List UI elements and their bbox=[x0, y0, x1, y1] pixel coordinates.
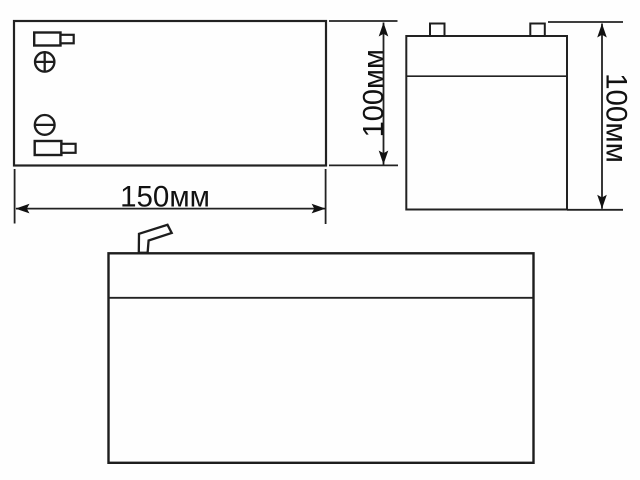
svg-text:100мм: 100мм bbox=[600, 73, 633, 163]
svg-text:100мм: 100мм bbox=[358, 49, 390, 137]
svg-text:150мм: 150мм bbox=[120, 181, 210, 214]
